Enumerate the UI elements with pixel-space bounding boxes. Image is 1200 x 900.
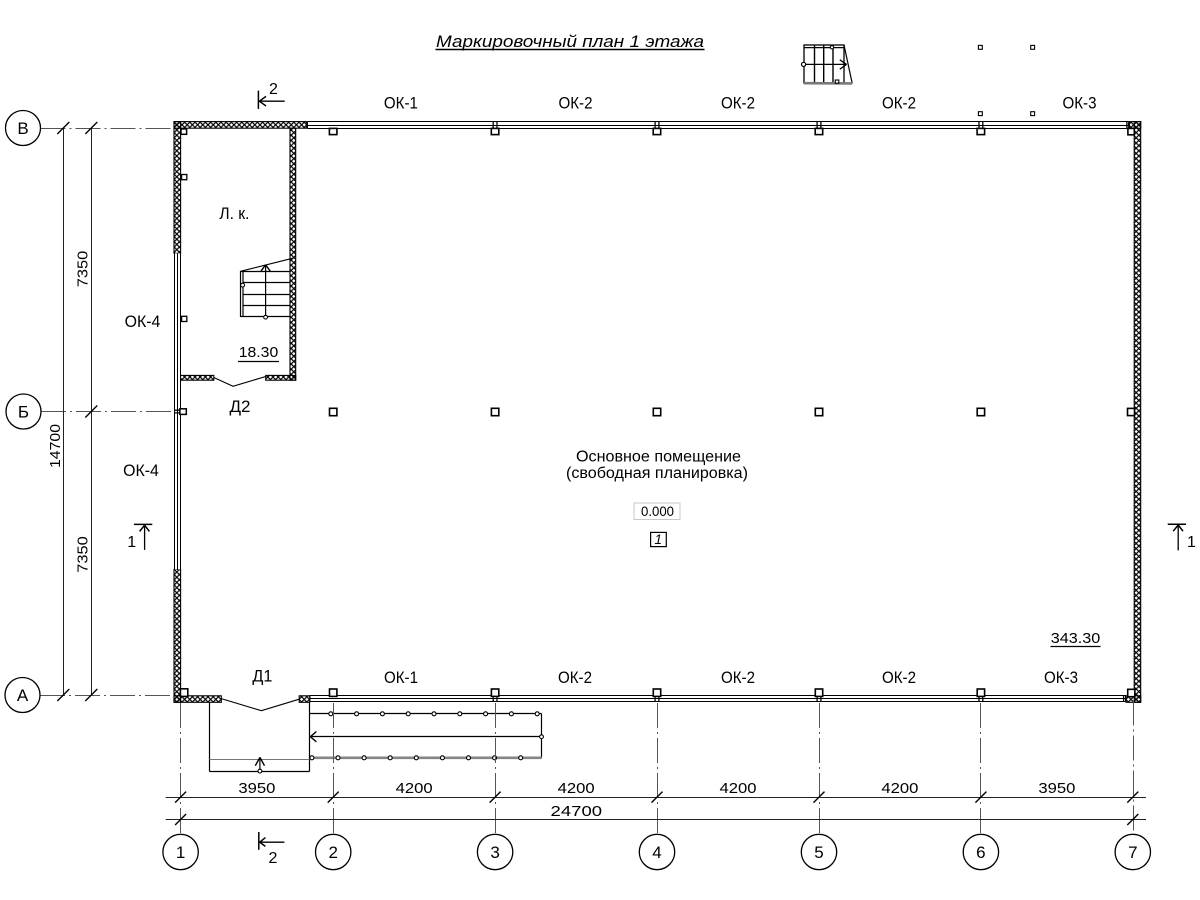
svg-text:1: 1	[127, 534, 136, 551]
svg-text:ОК-2: ОК-2	[721, 94, 755, 113]
svg-text:4200: 4200	[558, 780, 595, 797]
svg-text:0.000: 0.000	[641, 503, 674, 519]
svg-text:ОК-4: ОК-4	[125, 312, 161, 331]
svg-text:24700: 24700	[551, 803, 603, 820]
svg-text:3950: 3950	[1038, 780, 1075, 797]
svg-text:1: 1	[655, 532, 663, 547]
svg-text:В: В	[17, 119, 28, 138]
svg-text:Д1: Д1	[252, 667, 272, 686]
svg-text:7350: 7350	[75, 251, 92, 288]
svg-text:3950: 3950	[238, 780, 275, 797]
svg-text:6: 6	[976, 843, 985, 862]
svg-text:А: А	[17, 686, 29, 705]
svg-text:2: 2	[269, 81, 278, 98]
svg-text:ОК-4: ОК-4	[123, 461, 159, 480]
svg-text:Л. к.: Л. к.	[219, 204, 249, 223]
svg-text:ОК-2: ОК-2	[882, 94, 916, 113]
svg-text:4: 4	[652, 843, 661, 862]
svg-text:2: 2	[328, 843, 337, 862]
svg-text:Б: Б	[18, 403, 29, 422]
svg-text:ОК-2: ОК-2	[559, 94, 593, 113]
svg-text:3: 3	[490, 843, 499, 862]
svg-text:ОК-3: ОК-3	[1044, 668, 1078, 687]
svg-text:Маркировочный план 1 этажа: Маркировочный план 1 этажа	[436, 32, 704, 51]
svg-text:4200: 4200	[720, 780, 757, 797]
svg-text:343.30: 343.30	[1051, 630, 1101, 647]
svg-text:1: 1	[176, 843, 185, 862]
svg-text:Д2: Д2	[230, 397, 251, 416]
svg-text:18.30: 18.30	[239, 344, 279, 361]
svg-text:1: 1	[1187, 534, 1196, 551]
svg-text:7350: 7350	[75, 536, 92, 573]
svg-text:(свободная планировка): (свободная планировка)	[566, 465, 748, 482]
svg-text:7: 7	[1128, 843, 1137, 862]
svg-text:ОК-1: ОК-1	[384, 94, 418, 113]
svg-text:4200: 4200	[881, 780, 918, 797]
svg-text:ОК-1: ОК-1	[384, 668, 418, 687]
svg-text:4200: 4200	[396, 780, 433, 797]
svg-text:5: 5	[814, 843, 823, 862]
svg-text:14700: 14700	[47, 424, 64, 468]
svg-text:Основное помещение: Основное помещение	[576, 449, 741, 466]
svg-text:ОК-3: ОК-3	[1063, 94, 1097, 113]
svg-text:ОК-2: ОК-2	[721, 668, 755, 687]
svg-text:2: 2	[269, 850, 278, 867]
svg-text:ОК-2: ОК-2	[558, 668, 592, 687]
svg-text:ОК-2: ОК-2	[882, 668, 916, 687]
